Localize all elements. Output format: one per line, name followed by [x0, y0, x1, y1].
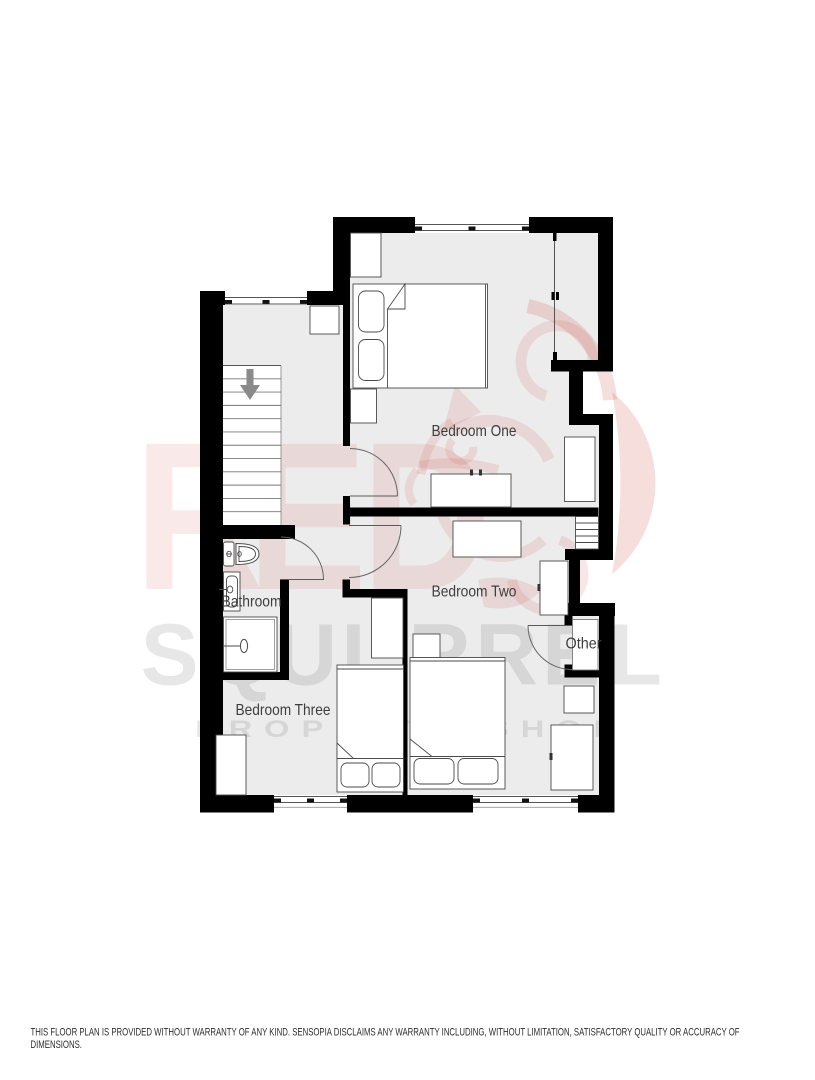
svg-text:DIMENSIONS.: DIMENSIONS.	[31, 1038, 82, 1051]
svg-text:Bedroom Two: Bedroom Two	[432, 584, 517, 601]
svg-text:Other: Other	[566, 636, 602, 653]
svg-text:Bedroom Three: Bedroom Three	[236, 702, 331, 719]
svg-text:Bedroom One: Bedroom One	[432, 423, 517, 440]
svg-text:Bathroom: Bathroom	[222, 594, 282, 611]
svg-text:THIS FLOOR PLAN IS PROVIDED WI: THIS FLOOR PLAN IS PROVIDED WITHOUT WARR…	[31, 1026, 740, 1039]
